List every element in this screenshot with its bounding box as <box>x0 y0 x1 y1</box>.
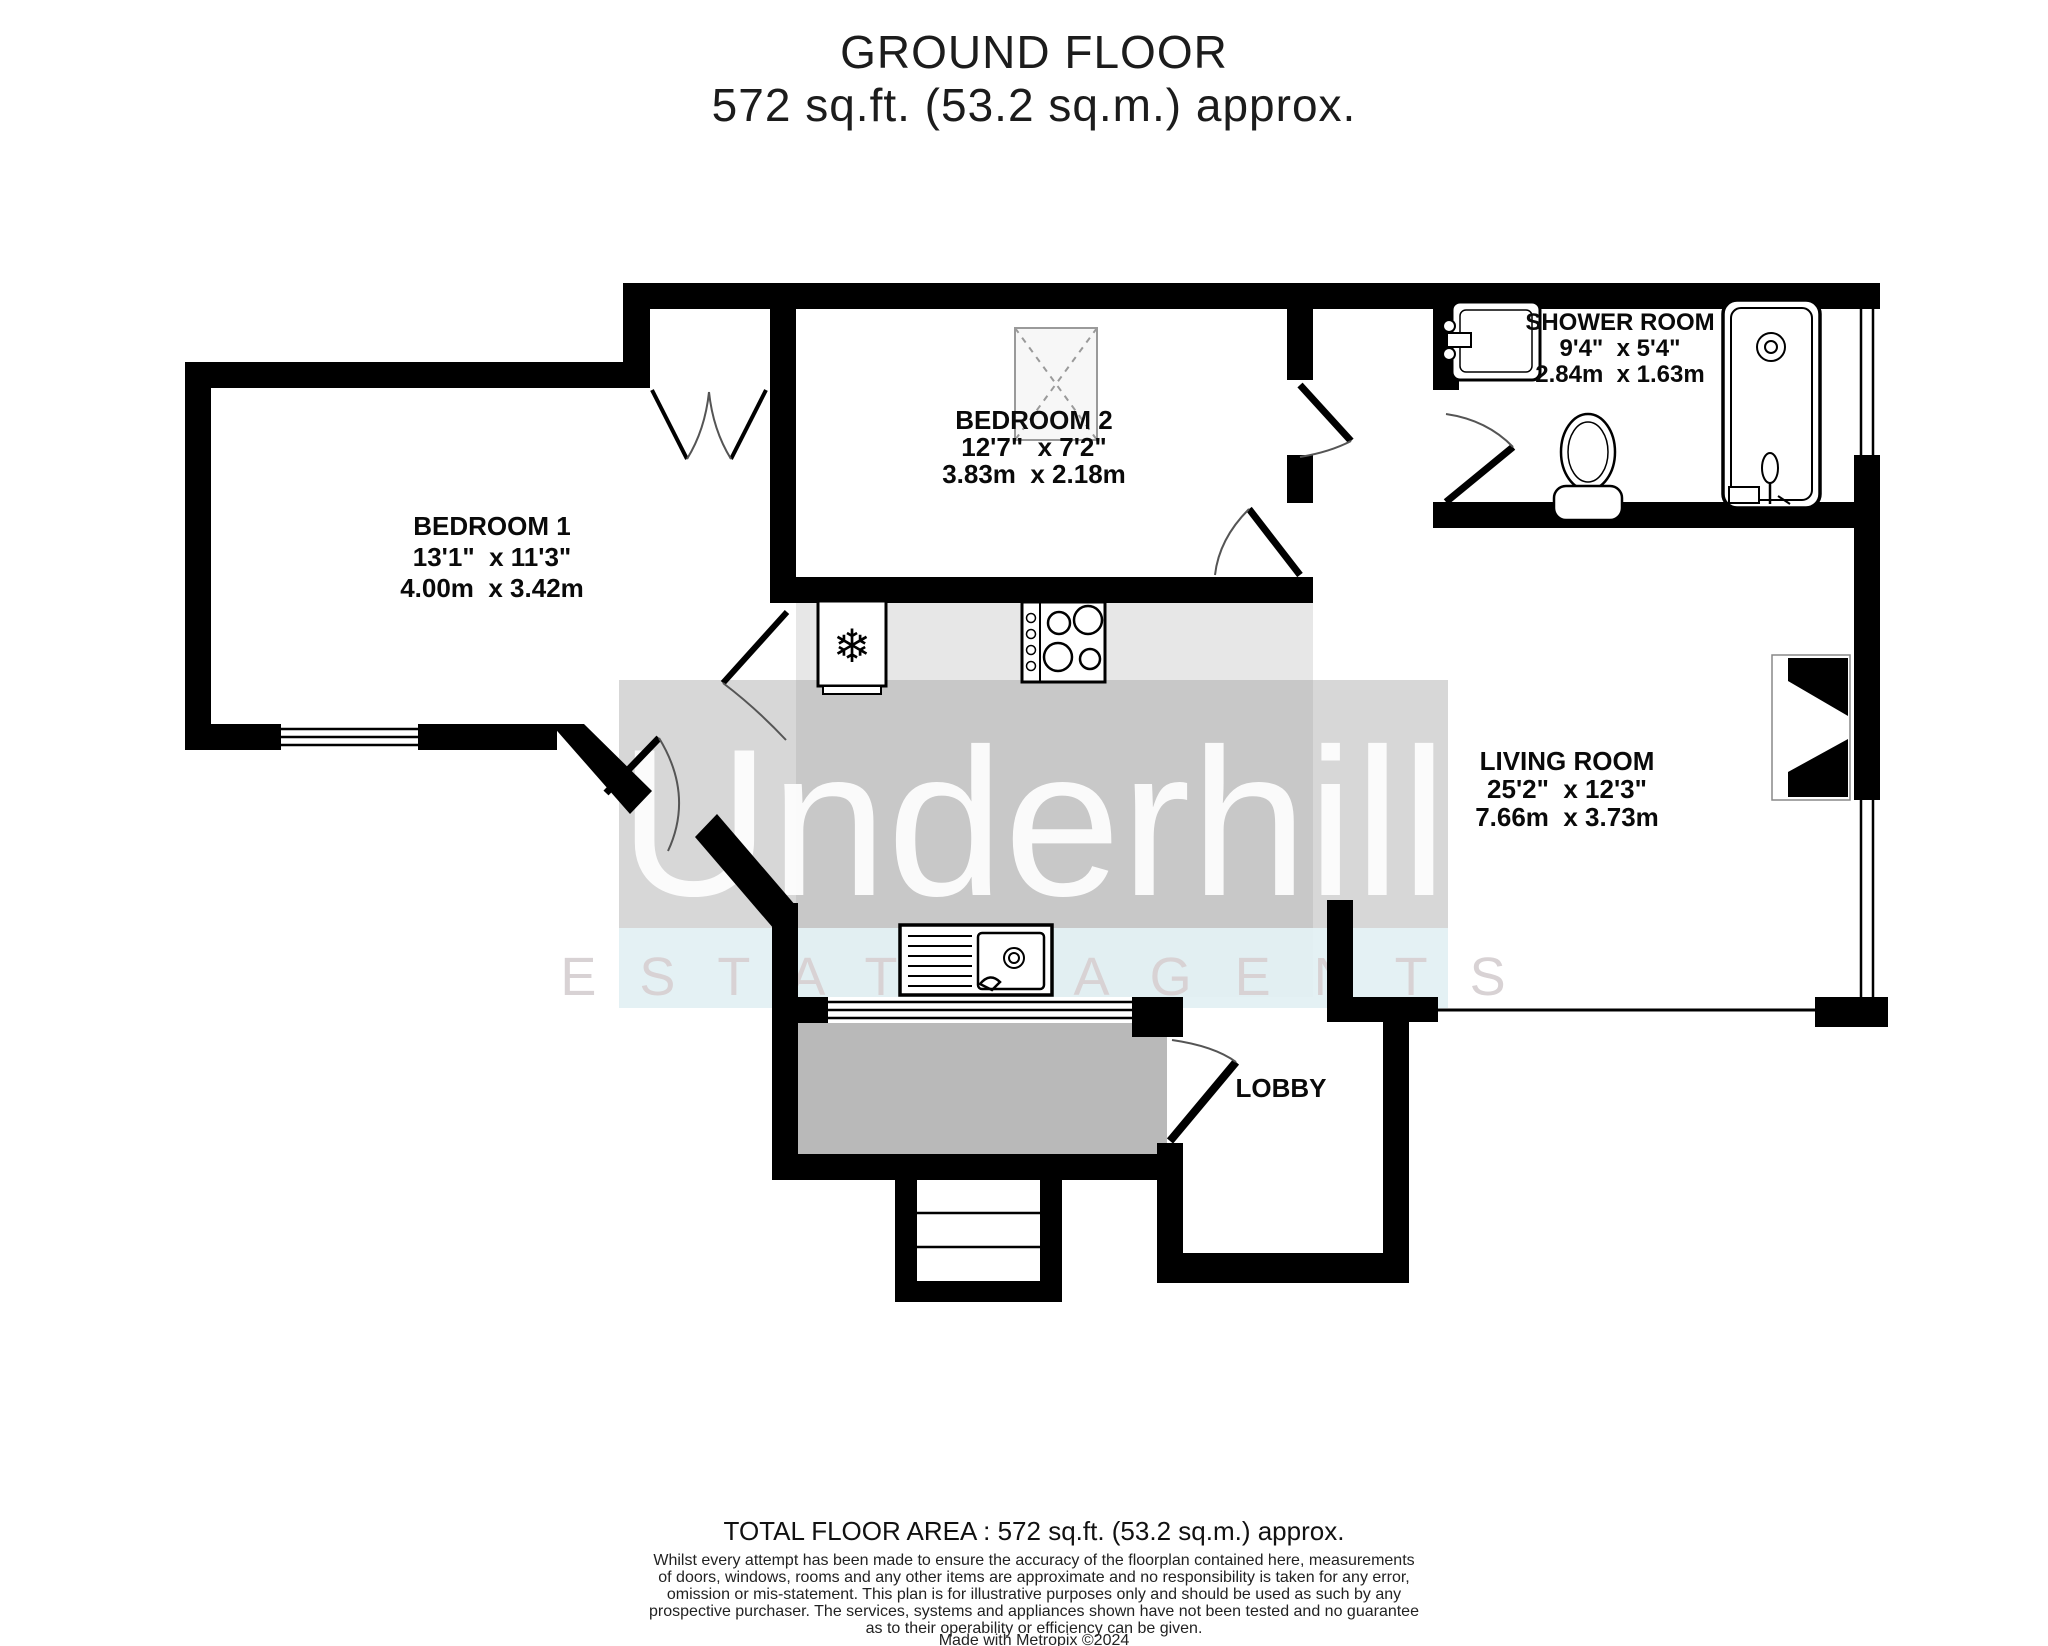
chimney-breast-icon <box>1772 655 1850 800</box>
disclaimer-line: of doors, windows, rooms and any other i… <box>658 1569 1409 1586</box>
wall-segment <box>772 1154 1180 1180</box>
wall-segment <box>185 362 211 750</box>
room-dims-imperial: 25'2" x 12'3" <box>1487 774 1647 804</box>
wall-segment <box>1157 1253 1409 1283</box>
hob-icon <box>1022 602 1105 682</box>
wall-segment <box>770 577 1313 603</box>
room-dims-imperial: 9'4" x 5'4" <box>1560 335 1681 362</box>
shower-room-door-leaf <box>1446 447 1513 502</box>
wall-segment <box>770 283 796 603</box>
kitchen-sink-icon <box>900 925 1052 995</box>
room-name: LIVING ROOM <box>1480 746 1655 776</box>
wall-segment <box>1383 1022 1409 1283</box>
plan-title: GROUND FLOOR 572 sq.ft. (53.2 sq.m.) app… <box>712 26 1357 131</box>
wall-segment <box>185 724 281 750</box>
fridge-freezer-icon: ❄ <box>818 601 886 694</box>
room-name: SHOWER ROOM <box>1525 309 1714 336</box>
credit-line: Made with Metropix ©2024 <box>939 1632 1130 1646</box>
wall-segment <box>772 997 828 1023</box>
disclaimer-line: omission or mis-statement. This plan is … <box>667 1586 1401 1603</box>
brand-watermark-text: Underhill <box>619 705 1448 940</box>
wall-segment <box>1815 997 1888 1027</box>
door-arc <box>1215 509 1249 575</box>
door-arc <box>1172 1040 1236 1062</box>
wall-segment <box>1132 997 1183 1037</box>
shower-head-icon <box>1762 453 1778 483</box>
door-arc <box>687 392 709 459</box>
front-door-leaf <box>1170 1062 1236 1141</box>
window-kitchen <box>828 997 1132 1023</box>
hall-door-leaf <box>1249 509 1300 575</box>
wall-segment <box>623 283 1880 309</box>
room-dims-metric: 7.66m x 3.73m <box>1475 802 1659 832</box>
porch-floor <box>798 1022 1167 1154</box>
label-bedroom1: BEDROOM 1 13'1" x 11'3" 4.00m x 3.42m <box>400 511 584 603</box>
label-shower-room: SHOWER ROOM 9'4" x 5'4" 2.84m x 1.63m <box>1525 309 1714 388</box>
label-lobby: LOBBY <box>1236 1073 1327 1103</box>
window-shower-room <box>1854 309 1880 455</box>
room-name: BEDROOM 1 <box>413 511 570 541</box>
room-dims-metric: 4.00m x 3.42m <box>400 573 584 603</box>
footer: TOTAL FLOOR AREA : 572 sq.ft. (53.2 sq.m… <box>649 1516 1419 1646</box>
window-living-room <box>1854 800 1880 997</box>
floorplan-svg: GROUND FLOOR 572 sq.ft. (53.2 sq.m.) app… <box>0 0 2048 1646</box>
room-dims-imperial: 12'7" x 7'2" <box>961 432 1106 462</box>
window-bedroom1 <box>281 724 418 750</box>
door-arc <box>709 392 731 459</box>
room-name: BEDROOM 2 <box>955 405 1112 435</box>
steps <box>895 1180 1062 1302</box>
steps-bottom-wall <box>895 1281 1062 1302</box>
vestibule-door-leaf <box>723 612 787 683</box>
room-dims-metric: 2.84m x 1.63m <box>1535 361 1704 388</box>
disclaimer-line: prospective purchaser. The services, sys… <box>649 1603 1419 1620</box>
door-arc <box>1300 441 1351 457</box>
door-arc <box>1446 414 1513 447</box>
toilet-icon <box>1554 414 1622 520</box>
title-line2: 572 sq.ft. (53.2 sq.m.) approx. <box>712 79 1357 131</box>
label-bedroom2: BEDROOM 2 12'7" x 7'2" 3.83m x 2.18m <box>942 405 1126 489</box>
wall-segment <box>1854 455 1880 800</box>
snowflake-icon: ❄ <box>833 620 872 672</box>
floorplan-page: GROUND FLOOR 572 sq.ft. (53.2 sq.m.) app… <box>0 0 2048 1646</box>
wall-segment <box>772 903 798 1180</box>
total-floor-area: TOTAL FLOOR AREA : 572 sq.ft. (53.2 sq.m… <box>724 1516 1345 1546</box>
bedroom2-door-leaf <box>1300 385 1351 441</box>
wall-segment <box>418 724 557 750</box>
wall-segment <box>1327 997 1438 1022</box>
closet-door-leaf <box>652 390 687 459</box>
tap-icon <box>1443 348 1455 360</box>
title-line1: GROUND FLOOR <box>840 26 1228 78</box>
room-dims-imperial: 13'1" x 11'3" <box>413 542 571 572</box>
wall-segment <box>1287 309 1313 380</box>
wall-segment <box>185 362 650 388</box>
shower-enclosure-icon <box>1723 300 1820 508</box>
room-dims-metric: 3.83m x 2.18m <box>942 459 1126 489</box>
wall-segment <box>1287 455 1313 503</box>
label-living-room: LIVING ROOM 25'2" x 12'3" 7.66m x 3.73m <box>1475 746 1659 832</box>
steps-treads <box>917 1180 1040 1281</box>
closet-door-leaf <box>731 390 766 459</box>
tap-icon <box>1443 320 1455 332</box>
disclaimer-line: Whilst every attempt has been made to en… <box>653 1552 1414 1569</box>
